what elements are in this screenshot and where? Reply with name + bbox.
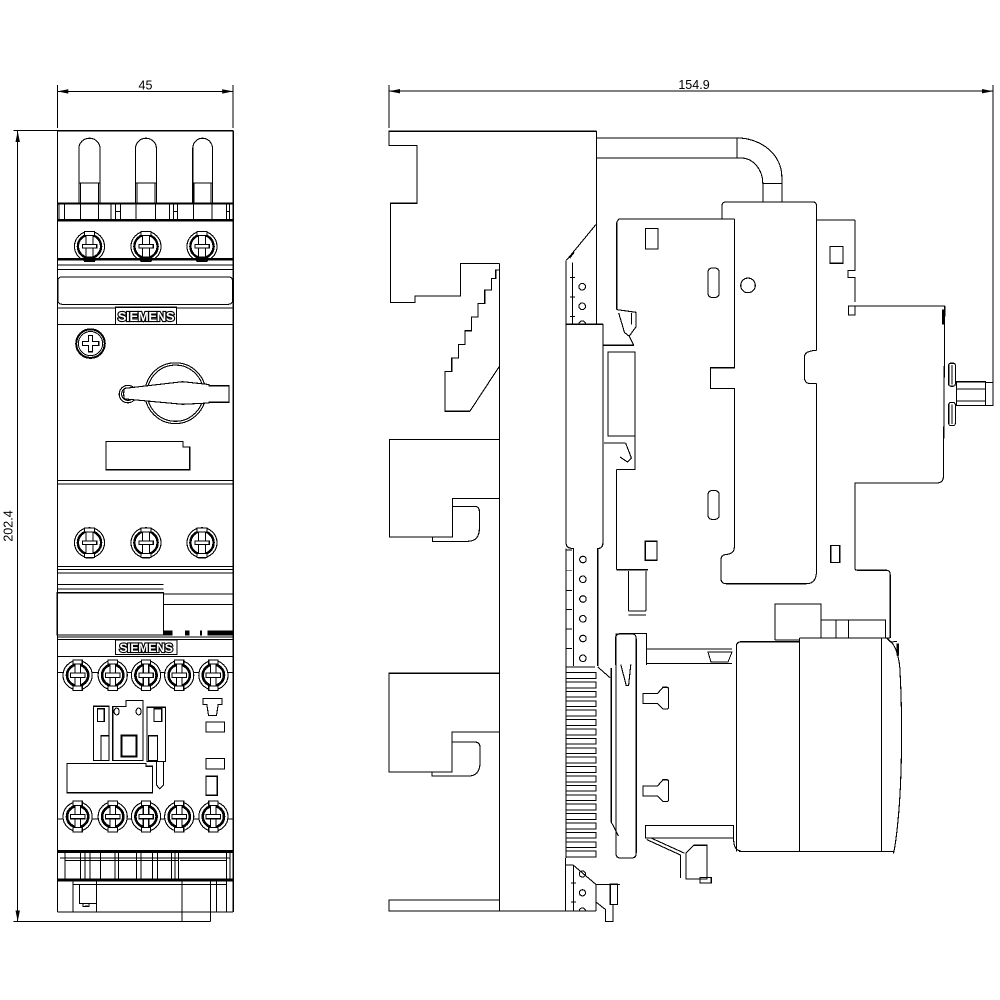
svg-text:45: 45: [139, 79, 153, 93]
svg-text:SIEMENS: SIEMENS: [118, 309, 175, 324]
svg-text:SIEMENS: SIEMENS: [119, 641, 172, 655]
svg-text:202.4: 202.4: [2, 510, 16, 541]
svg-text:154.9: 154.9: [678, 78, 709, 92]
